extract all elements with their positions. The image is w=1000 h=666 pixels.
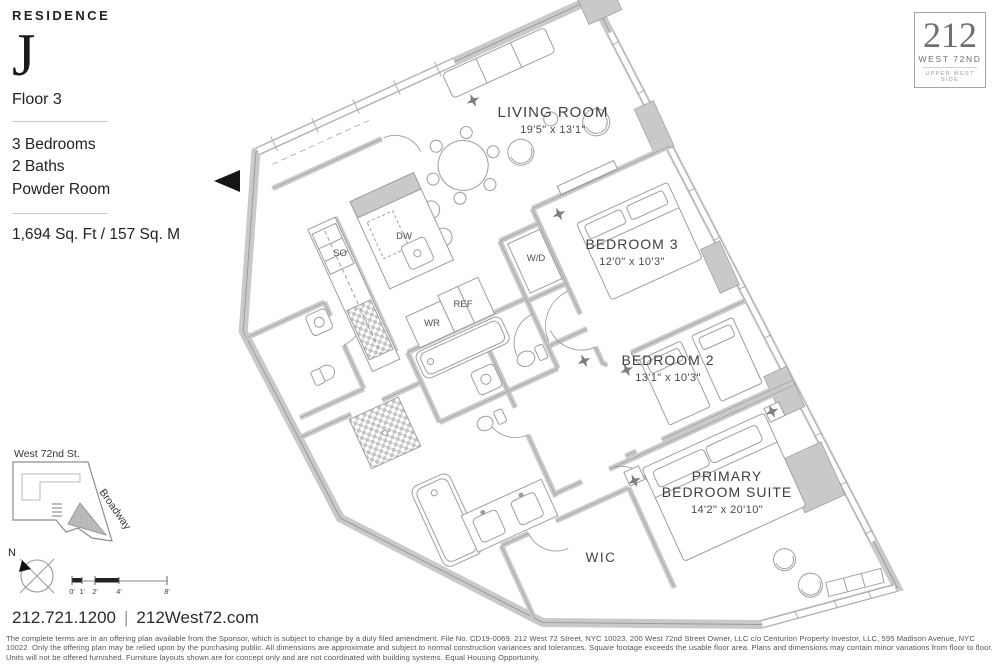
street-label-west72: West 72nd St. bbox=[14, 448, 80, 460]
phone-number: 212.721.1200 bbox=[12, 608, 116, 627]
contact-line: 212.721.1200|212West72.com bbox=[12, 608, 259, 628]
living-room-dims: 19'5" x 13'1" bbox=[520, 124, 586, 136]
scale-tick: 1' bbox=[79, 587, 85, 596]
primary-dims: 14'2" x 20'10" bbox=[691, 504, 763, 516]
bedroom3-dims: 12'0" x 10'3" bbox=[599, 256, 665, 268]
scale-tick: 2' bbox=[92, 587, 98, 596]
dw-label: DW bbox=[396, 231, 412, 242]
website: 212West72.com bbox=[136, 608, 259, 627]
scale-bar: 0' 1' 2' 4' 8' bbox=[69, 576, 170, 596]
contact-divider: | bbox=[124, 608, 128, 627]
legal-disclaimer: The complete terms are in an offering pl… bbox=[6, 634, 994, 662]
scale-tick: 8' bbox=[164, 587, 170, 596]
brochure-page: { "panel": { "residence_label": "RESIDEN… bbox=[0, 0, 1000, 666]
entry-arrow-icon bbox=[214, 170, 240, 192]
key-map: West 72nd St. Broadway bbox=[13, 448, 134, 541]
bedroom2-label: BEDROOM 2 bbox=[621, 352, 714, 368]
primary-label-line2: BEDROOM SUITE bbox=[662, 484, 792, 500]
wd-label: W/D bbox=[527, 253, 546, 264]
ref-label: REF bbox=[454, 299, 473, 310]
wic-label: WIC bbox=[586, 550, 617, 565]
floorplan-canvas: LIVING ROOM 19'5" x 13'1" BEDROOM 3 12'0… bbox=[0, 0, 1000, 666]
wr-label: WR bbox=[424, 318, 440, 329]
compass-rose: N bbox=[8, 547, 54, 593]
primary-label-line1: PRIMARY bbox=[692, 468, 763, 484]
bedroom3-label: BEDROOM 3 bbox=[585, 236, 678, 252]
north-label: N bbox=[8, 547, 16, 559]
floorplan-geometry bbox=[174, 0, 899, 666]
bedroom2-dims: 13'1" x 10'3" bbox=[635, 372, 701, 384]
so-label: SO bbox=[333, 248, 347, 259]
living-room-label: LIVING ROOM bbox=[497, 104, 608, 121]
scale-tick: 4' bbox=[116, 587, 122, 596]
scale-tick: 0' bbox=[69, 587, 75, 596]
